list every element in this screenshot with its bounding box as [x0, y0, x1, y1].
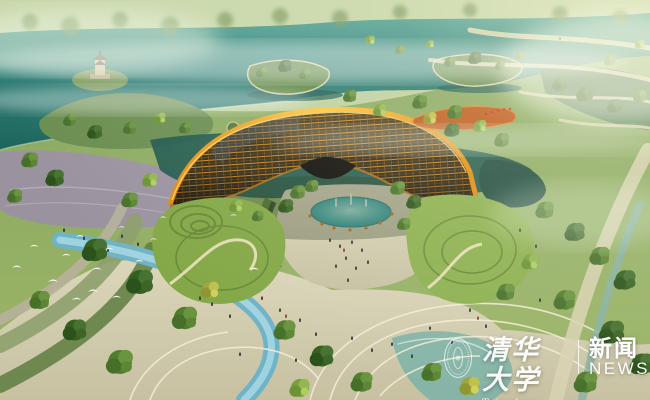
news-label-en: NEWS: [589, 360, 650, 379]
tsinghua-university-seal-icon: [444, 338, 472, 378]
news-logo: 新闻 NEWS: [589, 336, 650, 379]
watermark-separator: [578, 340, 579, 374]
university-name-zh: 清华大学: [482, 336, 568, 395]
rendering-image: 清华大学 Tsinghua University 新闻 NEWS: [0, 0, 650, 400]
watermark: 清华大学 Tsinghua University 新闻 NEWS: [444, 336, 650, 400]
university-name: 清华大学 Tsinghua University: [482, 336, 568, 400]
news-label-zh: 新闻: [589, 336, 639, 360]
